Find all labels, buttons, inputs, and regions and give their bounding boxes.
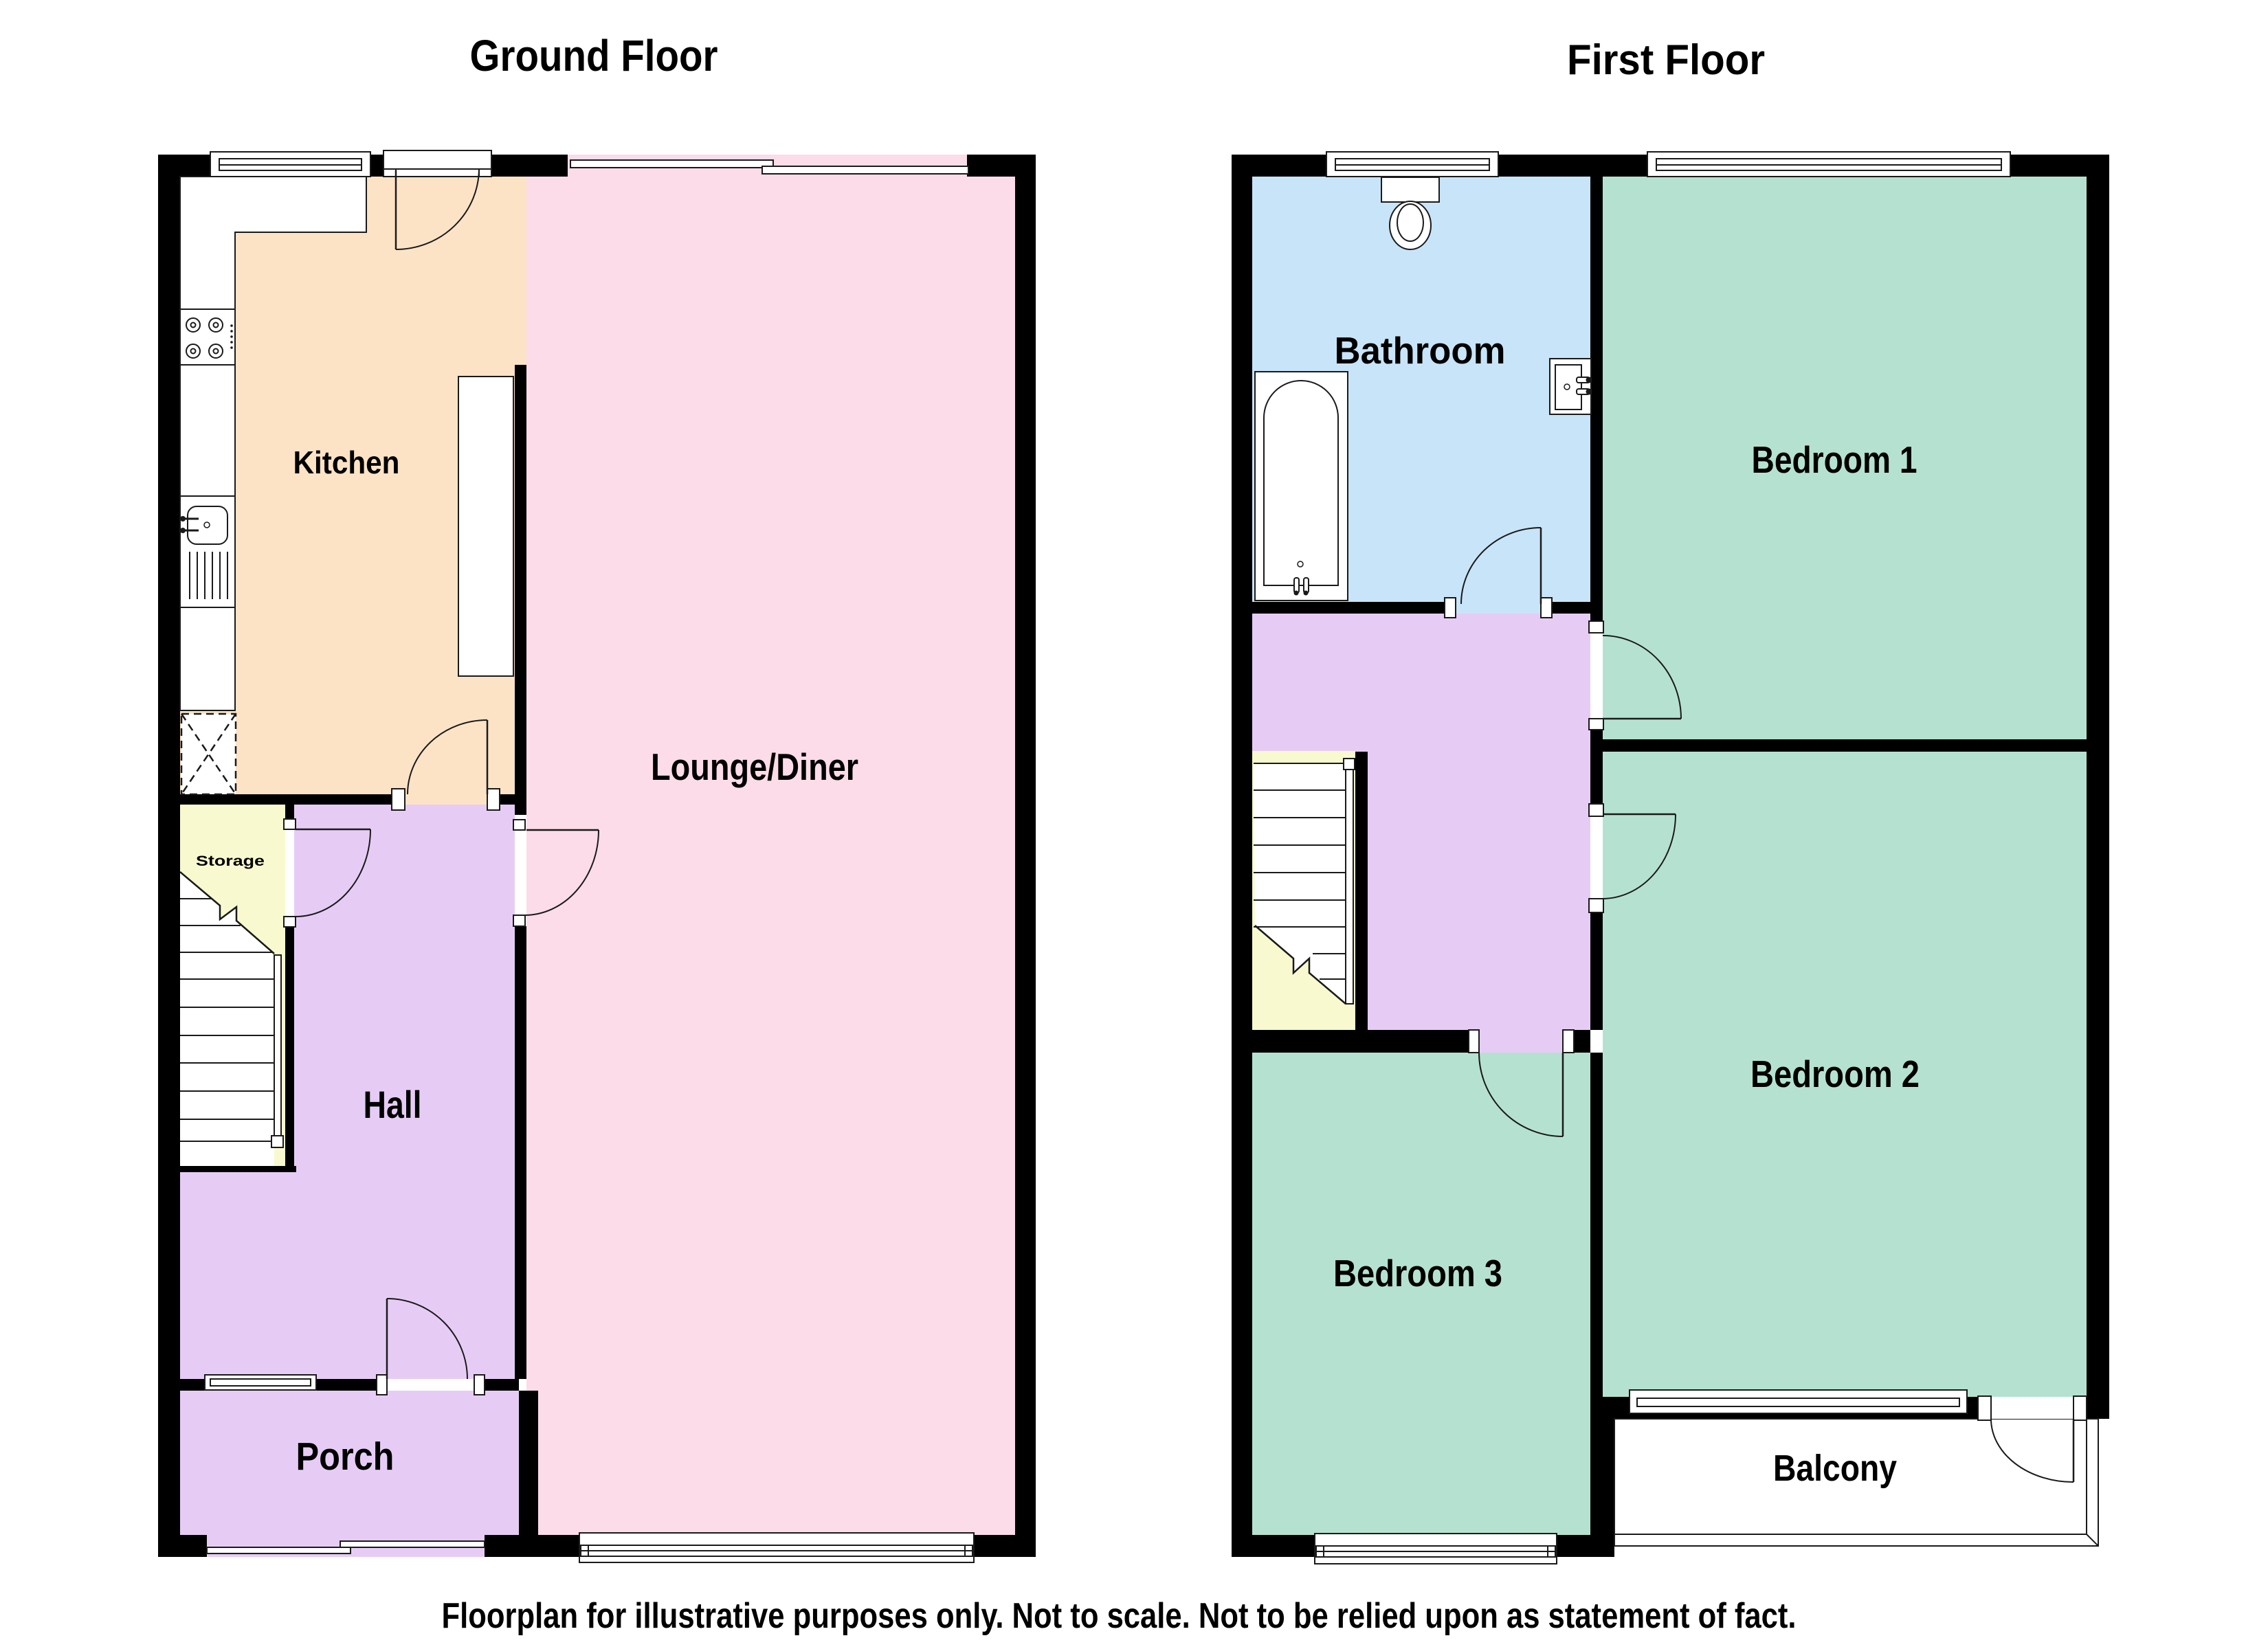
- svg-text:Hall: Hall: [364, 1083, 422, 1126]
- svg-text:Lounge/Diner: Lounge/Diner: [651, 745, 858, 788]
- svg-text:Bedroom 1: Bedroom 1: [1752, 438, 1917, 481]
- svg-text:Storage: Storage: [196, 853, 265, 869]
- svg-text:Floorplan for illustrative pur: Floorplan for illustrative purposes only…: [442, 1596, 1797, 1636]
- svg-text:Porch: Porch: [296, 1435, 394, 1479]
- svg-text:First Floor: First Floor: [1567, 36, 1765, 84]
- svg-text:Balcony: Balcony: [1773, 1448, 1897, 1489]
- svg-text:Kitchen: Kitchen: [293, 445, 400, 480]
- svg-text:Bathroom: Bathroom: [1335, 329, 1506, 372]
- svg-text:Bedroom 2: Bedroom 2: [1750, 1053, 1920, 1095]
- svg-text:Ground Floor: Ground Floor: [470, 31, 718, 80]
- svg-text:Bedroom 3: Bedroom 3: [1333, 1252, 1502, 1294]
